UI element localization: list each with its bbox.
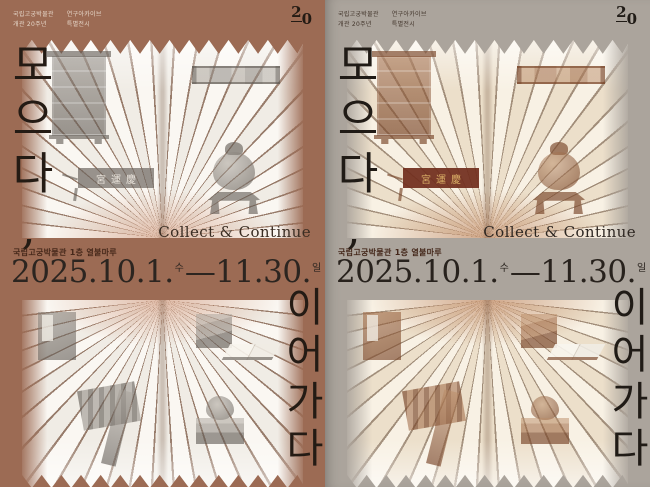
title-vertical-ieogada: 이어가다 [281,286,321,474]
meta-block-organizer: 국립고궁박물관 개관 20주년 [338,10,379,30]
poster-left-terracotta: 국립고궁박물관 개관 20주년 연구아카이브 특별전시 20 宮運慶 [0,0,325,487]
royal-seal-artifact [519,396,571,452]
fanned-book-top-spread: 宮運慶 [347,40,628,238]
royal-book-cover-artifact [363,312,401,360]
open-book [547,344,606,360]
logo-digit-0: 0 [302,12,312,27]
burner-body [213,152,255,190]
textile-panel [402,381,466,430]
royal-book-cover-artifact [38,312,76,360]
date-end-day: 일 [637,263,646,274]
subtitle-english: Collect & Continue [158,223,311,241]
logo-digit-0: 0 [627,12,637,27]
fanned-book-top-spread: 宮運慶 [22,40,303,238]
folded-textile-artifact [52,380,172,472]
date-end-day: 일 [312,263,321,274]
incense-burner-artifact [531,140,587,216]
artifact-layer-bottom [22,300,303,487]
folded-textile-artifact [377,380,497,472]
poster-pair: 국립고궁박물관 개관 20주년 연구아카이브 특별전시 20 宮運慶 [0,0,650,487]
seal-knob [531,396,559,420]
burner-body [538,152,580,190]
open-book [222,344,281,360]
book-box [521,314,557,348]
royal-seal-artifact [194,396,246,452]
anniversary-20-logo: 20 [616,7,637,25]
seal-base [521,418,569,444]
burner-base [208,192,260,214]
book-box [196,314,232,348]
book-box-open-book-artifact [517,314,609,370]
title-vertical-ieogada: 이어가다 [606,286,646,474]
meta-organizer-line2: 개관 20주년 [13,21,47,28]
date-start: 2025.10.1. [11,254,174,290]
wooden-cabinet-artifact [377,56,431,136]
horizontal-plaque-artifact [517,66,605,84]
incense-burner-artifact [206,140,262,216]
book-box-open-book-artifact [192,314,284,370]
exhibition-dates: 2025.10.1.수—11.30.일 [336,257,647,288]
artifact-layer-bottom [347,300,628,487]
burner-base [533,192,585,214]
fanned-book-bottom-spread [347,300,628,487]
meta-organizer-line1: 국립고궁박물관 [13,11,54,18]
date-separator: — [510,254,541,290]
artifact-layer-top: 宮運慶 [22,40,303,238]
date-start: 2025.10.1. [336,254,499,290]
wooden-cabinet-artifact [52,56,106,136]
meta-type-line1: 연구아카이브 [392,11,427,18]
anniversary-20-logo: 20 [291,7,312,25]
meta-block-organizer: 국립고궁박물관 개관 20주년 [13,10,54,30]
seal-knob [206,396,234,420]
logo-digit-2: 2 [616,5,626,22]
title-vertical-moeuda: 모으다, [6,42,50,265]
textile-panel [77,381,141,430]
exhibition-meta: 국립고궁박물관 개관 20주년 연구아카이브 특별전시 [13,10,102,30]
date-start-day: 수 [175,263,184,274]
exhibition-dates: 2025.10.1.수—11.30.일 [11,257,322,288]
fanned-book-bottom-spread [22,300,303,487]
exhibition-meta: 국립고궁박물관 개관 20주년 연구아카이브 특별전시 [338,10,427,30]
date-separator: — [185,254,216,290]
meta-organizer-line2: 개관 20주년 [338,21,372,28]
meta-organizer-line1: 국립고궁박물관 [338,11,379,18]
date-end: 11.30. [540,254,636,290]
palace-signboard-artifact: 宮運慶 [403,168,479,188]
meta-type-line1: 연구아카이브 [67,11,102,18]
meta-type-line2: 특별전시 [67,21,90,28]
date-end: 11.30. [215,254,311,290]
meta-type-line2: 특별전시 [392,21,415,28]
palace-signboard-artifact: 宮運慶 [78,168,154,188]
date-start-day: 수 [500,263,509,274]
artifact-layer-top: 宮運慶 [347,40,628,238]
subtitle-english: Collect & Continue [483,223,636,241]
logo-digit-2: 2 [291,5,301,22]
horizontal-plaque-artifact [192,66,280,84]
title-vertical-moeuda: 모으다, [331,42,375,265]
seal-base [196,418,244,444]
poster-right-greige: 국립고궁박물관 개관 20주년 연구아카이브 특별전시 20 宮運慶 [325,0,650,487]
meta-block-exhibition-type: 연구아카이브 특별전시 [67,10,102,30]
meta-block-exhibition-type: 연구아카이브 특별전시 [392,10,427,30]
